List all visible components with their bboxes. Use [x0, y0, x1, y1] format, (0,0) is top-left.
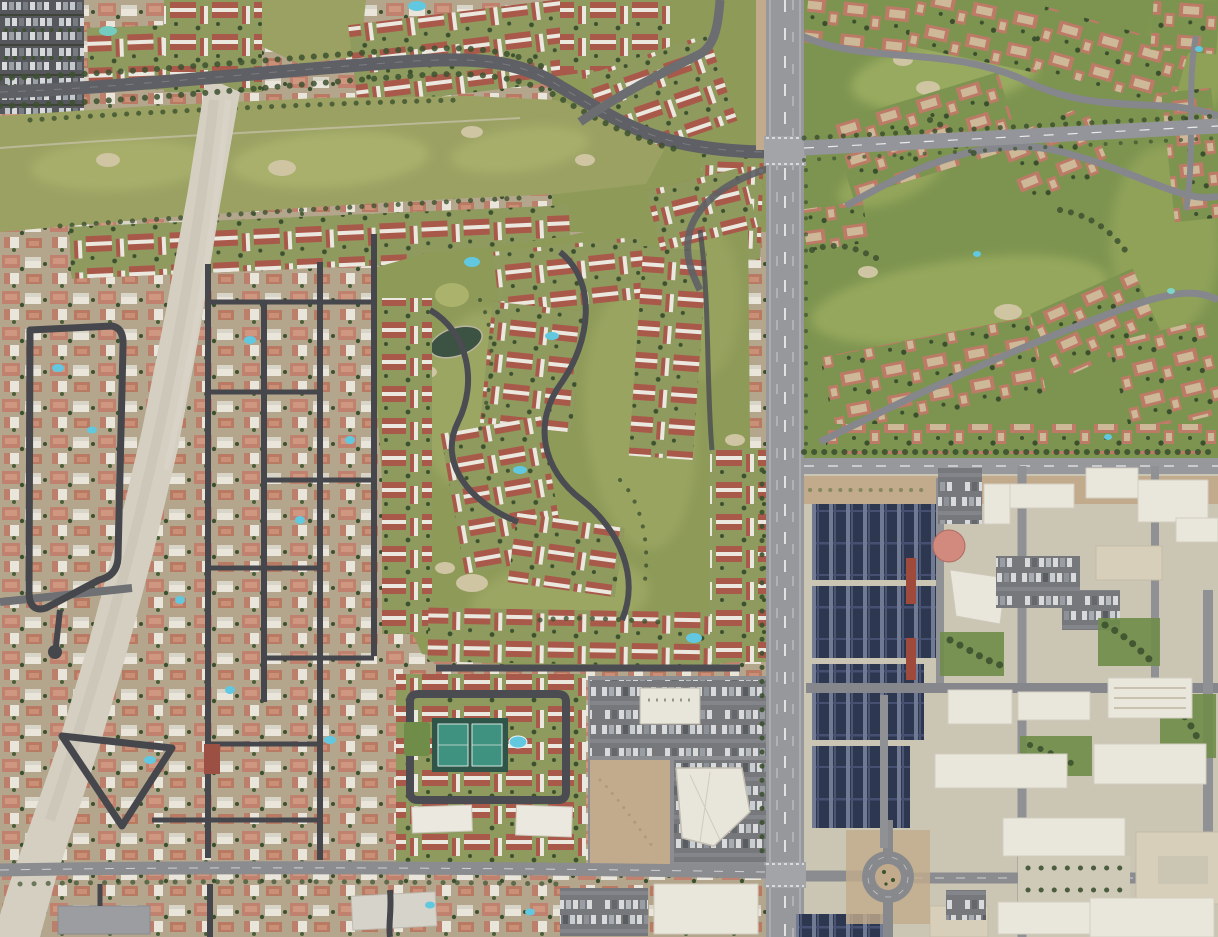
swimming-pool: [52, 364, 64, 372]
sand-bunker: [575, 154, 595, 166]
island-shrub: [882, 870, 886, 874]
swimming-pool: [87, 427, 97, 434]
round-pink-building: [933, 530, 965, 562]
sand-bunker: [725, 434, 745, 446]
satellite-map-view[interactable]: [0, 0, 1218, 937]
condo-row: [428, 607, 721, 666]
red-canopy-building: [906, 638, 916, 680]
residential-street: [389, 890, 390, 937]
swimming-pool: [324, 736, 336, 744]
swimming-pool: [513, 466, 527, 474]
campus-building: [1003, 818, 1125, 856]
swimming-pool: [225, 686, 235, 694]
campus-building: [1176, 518, 1218, 542]
island-shrub: [891, 878, 895, 882]
parking-rows: [938, 468, 982, 524]
swimming-pool: [1195, 46, 1203, 52]
swimming-pool: [1167, 288, 1175, 294]
commercial-building: [640, 688, 700, 724]
swimming-pool: [175, 596, 185, 604]
condo-building: [515, 805, 572, 837]
campus-building: [935, 754, 1067, 788]
sand-bunker: [858, 266, 878, 278]
putting-green: [435, 283, 469, 307]
swimming-pool: [345, 436, 355, 444]
intersection-north: [764, 136, 806, 166]
sand-bunker: [994, 304, 1022, 320]
solar-carport-array: [812, 586, 936, 658]
parking-rows: [946, 890, 986, 920]
sand-bunker: [96, 153, 120, 167]
sand-bunker: [435, 562, 455, 574]
swimming-pool: [295, 516, 305, 524]
condo-cluster: [1150, 0, 1218, 54]
solar-carport-array: [812, 504, 936, 580]
swimming-pool: [464, 257, 480, 267]
intersection-south: [764, 862, 806, 888]
campus-building: [998, 902, 1090, 934]
campus-building: [1096, 546, 1162, 580]
campus-building: [1090, 898, 1214, 937]
condo-cluster: [382, 298, 432, 634]
swimming-pool: [525, 909, 535, 916]
campus-building: [1018, 692, 1090, 720]
red-paver-entry: [204, 744, 220, 774]
campus-building: [1138, 480, 1208, 522]
red-canopy-building: [906, 558, 916, 604]
cul-de-sac: [48, 645, 62, 659]
swimming-pool: [408, 1, 426, 11]
campus-building: [984, 484, 1010, 524]
sand-bunker: [456, 574, 488, 592]
median-dirt: [756, 0, 766, 150]
loop-street-spur: [56, 610, 60, 646]
swimming-pool: [1104, 434, 1112, 440]
condo-cluster: [710, 448, 766, 662]
sand-bunker: [461, 126, 483, 138]
island-shrub: [884, 882, 887, 885]
campus-building: [1086, 468, 1138, 498]
aerial-imagery: [0, 0, 1218, 937]
recreation-lawn: [404, 722, 430, 756]
swimming-pool: [509, 736, 527, 748]
commercial-strip-building: [58, 906, 150, 934]
swimming-pool: [99, 26, 117, 36]
campus-building: [948, 690, 1012, 724]
white-roof-building: [654, 884, 758, 934]
swimming-pool: [144, 756, 156, 764]
solar-carport-array: [812, 746, 910, 828]
sand-bunker: [268, 160, 296, 176]
vacant-dirt-lot: [590, 760, 670, 864]
campus-building: [1094, 744, 1206, 784]
courtyard: [1158, 856, 1208, 884]
condo-building: [412, 805, 473, 833]
swimming-pool: [686, 633, 702, 643]
swimming-pool: [545, 332, 559, 340]
swimming-pool: [425, 902, 435, 909]
white-roof-building: [351, 892, 437, 930]
swimming-pool: [244, 336, 256, 344]
parking-rows: [560, 888, 648, 936]
swimming-pool: [973, 251, 981, 257]
roundabout-island: [875, 864, 901, 890]
